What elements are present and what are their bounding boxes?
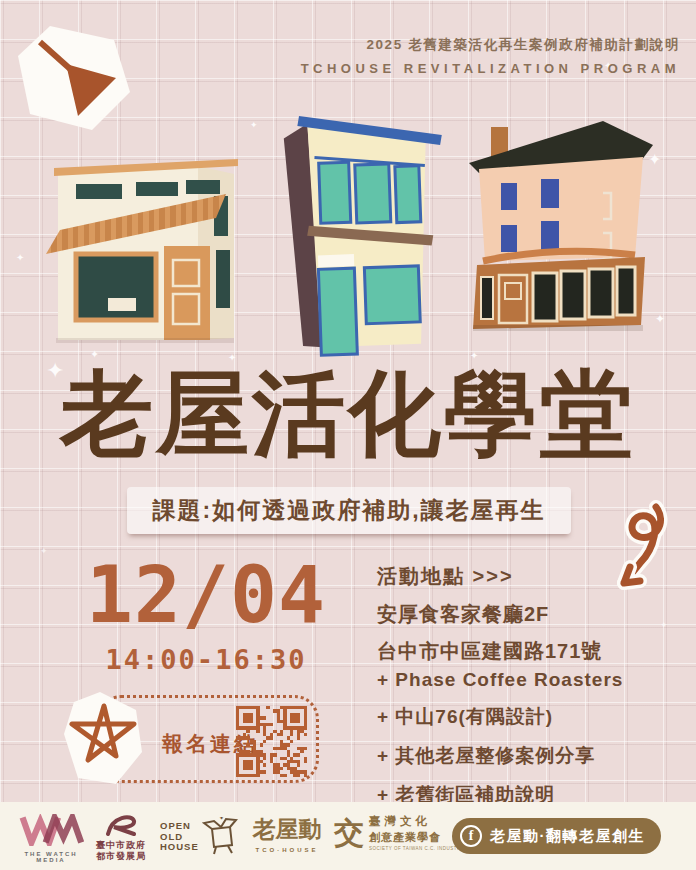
facebook-icon: f [460, 825, 482, 847]
watch-media-logo: THE WATCH MEDIA [12, 814, 90, 863]
facebook-page-name: 老屋動·翻轉老屋創生 [490, 827, 645, 846]
society-caption: SOCIETY OF TAIWAN C.C. INDUSTRIES [369, 846, 470, 851]
agenda-list: + Phase Coffee Roasters + 中山76(有隅設計) + 其… [377, 669, 623, 821]
subtitle-text: 課題:如何透過政府補助,讓老屋再生 [152, 495, 545, 526]
header: 2025 老舊建築活化再生案例政府補助計劃說明 TCHOUSE REVITALI… [301, 36, 680, 76]
header-line-en: TCHOUSE REVITALIZATION PROGRAM [301, 61, 680, 76]
event-time: 14:00-16:30 [68, 644, 344, 675]
open-old-house-text: OPEN OLD HOUSE [160, 821, 199, 854]
open-old-house-logo: OPEN OLD HOUSE ✦ [160, 817, 240, 857]
house-illustration-shop [46, 140, 262, 352]
location-venue: 安厚食客家餐廳2F [377, 601, 677, 628]
house-illustration-corner-building [453, 111, 675, 349]
arrow-doodle-icon [18, 26, 130, 132]
event-poster: 2025 老舊建築活化再生案例政府補助計劃說明 TCHOUSE REVITALI… [0, 0, 696, 870]
society-logo: 交 臺灣文化 創意產業學會 SOCIETY OF TAIWAN C.C. IND… [334, 814, 470, 851]
tco-house-logo: 老屋動 TCO·HOUSE [252, 814, 322, 853]
box-character-icon: ✦ [202, 817, 240, 857]
gov-name-line1: 臺中市政府 [92, 840, 150, 851]
gov-name-line2: 都市發展局 [92, 851, 150, 862]
star-doodle-icon [64, 690, 144, 786]
tco-house-logotype: 老屋動 [252, 814, 322, 845]
society-glyph-icon: 交 [334, 818, 364, 848]
qr-code [236, 706, 307, 777]
svg-text:✦: ✦ [219, 817, 224, 821]
location-heading: 活動地點 >>> [377, 563, 677, 590]
bird-logo-icon [104, 812, 138, 836]
header-line-zh: 2025 老舊建築活化再生案例政府補助計劃說明 [301, 36, 680, 54]
agenda-item: + 其他老屋整修案例分享 [377, 743, 623, 769]
event-date: 12/04 [68, 556, 344, 634]
sparkle-icon [470, 350, 478, 361]
agenda-item: + Phase Coffee Roasters [377, 669, 623, 691]
house-illustration-townhouse [257, 94, 457, 364]
agenda-item: + 中山76(有隅設計) [377, 704, 623, 730]
sparkle-icon [16, 252, 24, 263]
location-block: 活動地點 >>> 安厚食客家餐廳2F 台中市中區建國路171號 [377, 563, 677, 665]
footer-logo-bar: THE WATCH MEDIA 臺中市政府 都市發展局 OPEN OLD HOU… [0, 802, 696, 870]
event-datetime: 12/04 14:00-16:30 [68, 556, 344, 675]
sparkle-icon [40, 546, 48, 556]
location-address: 台中市中區建國路171號 [377, 638, 677, 665]
taichung-gov-logo: 臺中市政府 都市發展局 [92, 812, 150, 862]
watch-media-caption: THE WATCH MEDIA [12, 851, 90, 863]
facebook-badge: f 老屋動·翻轉老屋創生 [452, 818, 661, 854]
page-title: 老屋活化學堂 [0, 366, 696, 464]
tco-house-caption: TCO·HOUSE [252, 847, 322, 853]
subtitle-banner: 課題:如何透過政府補助,讓老屋再生 [127, 487, 571, 534]
wm-logo-icon [18, 814, 84, 846]
